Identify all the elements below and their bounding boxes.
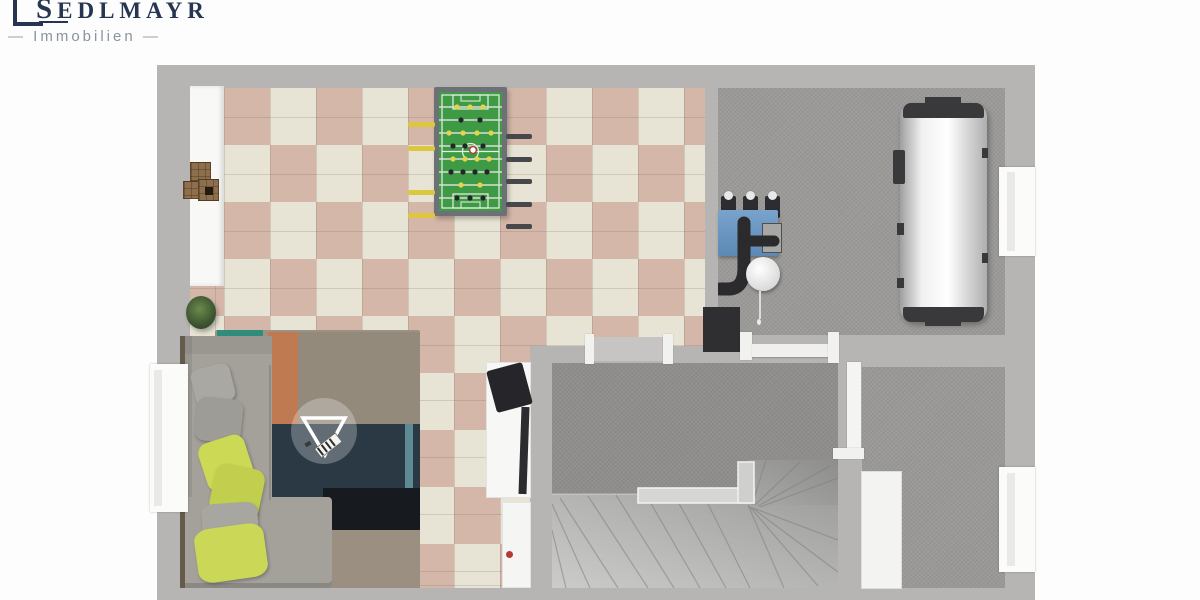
brand-tagline: — Immobilien — bbox=[8, 28, 208, 45]
hot-water-cylinder bbox=[900, 103, 987, 322]
window-pane bbox=[154, 370, 162, 506]
sideboard-lower bbox=[502, 502, 531, 588]
foosball-handle bbox=[506, 134, 532, 139]
stair-handrail bbox=[638, 488, 754, 503]
cylinder-port bbox=[893, 150, 905, 184]
floor-plan bbox=[157, 65, 1035, 600]
rug-panel bbox=[323, 488, 420, 530]
floor-plan-screenshot: SEDLMAYR — Immobilien — bbox=[0, 0, 1200, 600]
door-jamb bbox=[833, 448, 864, 459]
stair-handrail-post bbox=[738, 462, 754, 503]
door-jamb bbox=[828, 332, 839, 363]
wooden-crate bbox=[183, 181, 199, 199]
cylinder-fitting bbox=[897, 223, 904, 235]
foosball-markings bbox=[439, 92, 502, 211]
foosball-handle bbox=[506, 157, 532, 162]
cylinder-vent bbox=[925, 320, 961, 326]
watermark-triangle-icon bbox=[299, 414, 351, 460]
door-leaf bbox=[861, 471, 902, 589]
door-jamb bbox=[740, 332, 752, 360]
foosball-handle bbox=[506, 224, 532, 229]
cylinder-fitting bbox=[982, 253, 988, 263]
partition-wall bbox=[752, 344, 828, 357]
window-pane bbox=[1007, 172, 1015, 251]
tagline-dash: — bbox=[143, 28, 161, 45]
foosball-handle bbox=[408, 190, 435, 195]
cushion-yellow bbox=[193, 521, 270, 584]
window bbox=[150, 364, 188, 512]
brand-logo: SEDLMAYR — Immobilien — bbox=[0, 0, 260, 60]
cylinder-fitting bbox=[982, 148, 988, 158]
foosball-field bbox=[439, 92, 502, 211]
door-jamb bbox=[663, 334, 673, 364]
round-tank bbox=[746, 257, 780, 291]
foosball-handle bbox=[408, 122, 435, 127]
door-jamb bbox=[585, 334, 594, 364]
cylinder-fitting bbox=[897, 278, 904, 288]
foosball-handle bbox=[506, 202, 532, 207]
door-leaf bbox=[847, 362, 861, 448]
winder-staircase bbox=[552, 460, 838, 588]
potted-plant bbox=[186, 296, 216, 329]
small-red-object bbox=[506, 551, 513, 558]
foosball-handle bbox=[408, 146, 435, 151]
window bbox=[999, 167, 1035, 256]
foosball-handle bbox=[408, 213, 435, 218]
foosball-table bbox=[434, 87, 507, 216]
foosball-handle bbox=[506, 179, 532, 184]
sofa-seam bbox=[269, 365, 271, 500]
door-mat bbox=[703, 307, 740, 352]
door-opening bbox=[594, 337, 663, 361]
window bbox=[999, 467, 1035, 572]
rug-panel bbox=[268, 332, 298, 424]
brand-underline bbox=[39, 21, 68, 23]
boiler-cable bbox=[759, 291, 761, 319]
window-pane bbox=[1007, 473, 1015, 566]
cylinder-cap bbox=[903, 103, 984, 118]
tagline-text: Immobilien bbox=[33, 28, 136, 45]
boiler-drain bbox=[757, 319, 761, 325]
tagline-dash: — bbox=[8, 28, 26, 45]
wooden-crate bbox=[198, 179, 219, 201]
